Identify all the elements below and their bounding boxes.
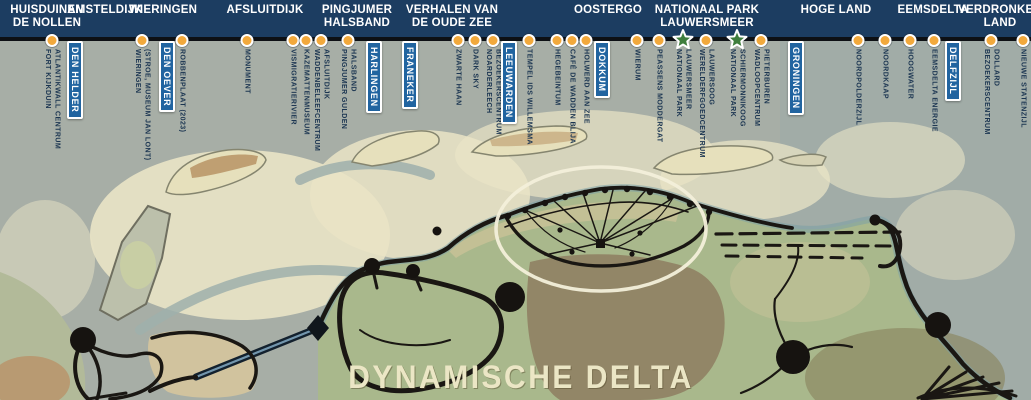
station-dot-icon xyxy=(551,34,564,47)
station-label: WIERUM xyxy=(632,49,641,81)
station-dot-icon xyxy=(879,34,892,47)
city-badge: DELFZIJL xyxy=(945,41,961,101)
region-label: HOGE LAND xyxy=(801,4,872,17)
station-dot-icon xyxy=(46,34,59,47)
station-dot-icon xyxy=(985,34,998,47)
station-label: FORT KIJKDUINATLANTIKWALL CENTRUM xyxy=(43,49,62,149)
station-label: NOARDERLEECHBEZOEKERSCENTRUM xyxy=(484,49,503,135)
station-label: HOOGWATER xyxy=(905,49,914,99)
region-label: WIERINGEN xyxy=(129,4,197,17)
station-dot-icon xyxy=(523,34,536,47)
station-dot-icon xyxy=(469,34,482,47)
station-label: NIEUWE STATENZIJL xyxy=(1018,49,1027,128)
national-park-star-icon xyxy=(672,29,694,51)
station-dot-icon xyxy=(700,34,713,47)
station-label: TEMPEL IDS WILLEMSMA xyxy=(524,49,533,145)
station-dot-icon xyxy=(342,34,355,47)
station-label: WADLOOPCENTRUMPIETERBUREN xyxy=(752,49,771,126)
station-label: NATIONAAL PARKLAUWERSMEER xyxy=(674,49,693,117)
station-label: WIERINGEN(STROE, MUSEUM JAN LONT) xyxy=(133,49,152,161)
station-dot-icon xyxy=(904,34,917,47)
station-dot-icon xyxy=(755,34,768,47)
station-label: DARK SKY xyxy=(470,49,479,89)
wadden-coast-infographic: DYNAMISCHE DELTA HUISDUINENDE NOLLENAMST… xyxy=(0,0,1031,400)
station-dot-icon xyxy=(566,34,579,47)
station-label: EEMSDELTA ENERGIE xyxy=(929,49,938,132)
station-label: NATIONAAL PARKSCHIERMONNIKOOG xyxy=(728,49,747,127)
station-label: CAFÉ DE WADDEN BLIJA xyxy=(567,49,576,144)
map-title: DYNAMISCHE DELTA xyxy=(348,360,694,397)
station-dot-icon xyxy=(241,34,254,47)
city-badge: DEN HELDER xyxy=(67,41,83,119)
station-dot-icon xyxy=(452,34,465,47)
station-label: NOORDKAAP xyxy=(880,49,889,99)
station-dot-icon xyxy=(631,34,644,47)
station-dot-icon xyxy=(1017,34,1030,47)
station-label: NOORDPOLDERZIJL xyxy=(853,49,862,125)
station-label: WADDENBELEEFCENTRUMAFSLUITDIJK xyxy=(312,49,331,151)
city-badge: GRONINGEN xyxy=(788,41,804,115)
station-dot-icon xyxy=(852,34,865,47)
city-badge: HARLINGEN xyxy=(366,41,382,113)
station-dot-icon xyxy=(287,34,300,47)
region-label: NATIONAAL PARKLAUWERSMEER xyxy=(655,4,759,30)
station-label: ZWARTE HAAN xyxy=(453,49,462,106)
station-label: HOLWERD AAN ZEE xyxy=(581,49,590,124)
station-dot-icon xyxy=(487,34,500,47)
national-park-star-icon xyxy=(726,29,748,51)
station-label: MONUMENT xyxy=(242,49,251,94)
station-dot-icon xyxy=(136,34,149,47)
station-dot-icon xyxy=(928,34,941,47)
station-dot-icon xyxy=(176,34,189,47)
station-label: VISMIGRATIERIVIER xyxy=(288,49,297,125)
region-label: VERHALEN VANDE OUDE ZEE xyxy=(406,4,498,30)
city-badge: LEEUWARDEN xyxy=(501,41,517,124)
region-label: PINGJUMERHALSBAND xyxy=(322,4,392,30)
station-label: PINGJUMER GULDENHALSBAND xyxy=(339,49,358,129)
region-label: AFSLUITDIJK xyxy=(227,4,304,17)
city-badge: DEN OEVER xyxy=(159,41,175,112)
station-label: WERELDERFGOEDCENTRUMLAUWERSOOG xyxy=(697,49,716,158)
station-dot-icon xyxy=(315,34,328,47)
city-badge: DOKKUM xyxy=(594,41,610,98)
station-label: HEGEBEINTUM xyxy=(552,49,561,106)
station-label: BEZOEKERSCENTRUMDOLLARD xyxy=(982,49,1001,135)
region-label: OOSTERGO xyxy=(574,4,642,17)
station-dot-icon xyxy=(653,34,666,47)
city-badge: FRANEKER xyxy=(402,41,418,109)
station-label: ROBBENPLAAT (2023) xyxy=(177,49,186,132)
station-dot-icon xyxy=(300,34,313,47)
region-label: VERDRONKENLAND xyxy=(958,4,1031,30)
station-dot-icon xyxy=(580,34,593,47)
station-label: PEASSENS MODDERGAT xyxy=(654,49,663,143)
station-label: KAZEMATTENMUSEUM xyxy=(301,49,310,135)
